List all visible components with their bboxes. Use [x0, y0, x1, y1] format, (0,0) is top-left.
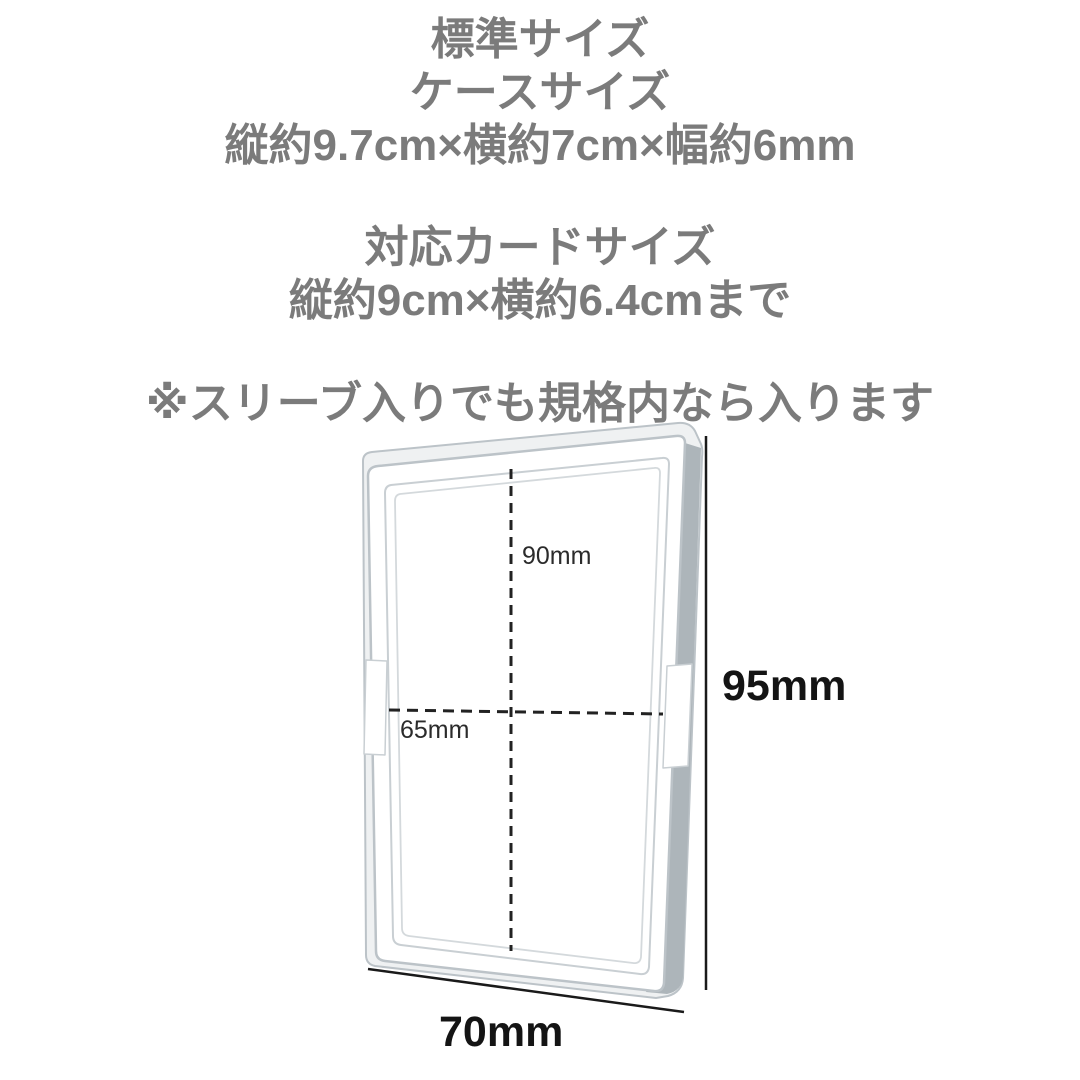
left-slot-notch	[364, 660, 387, 755]
case-front-face	[368, 436, 685, 991]
label-card-height: 90mm	[522, 542, 591, 571]
label-case-width: 70mm	[439, 1008, 563, 1057]
product-spec-image: 標準サイズ ケースサイズ 縦約9.7cm×横約7cm×幅約6mm 対応カードサイ…	[0, 0, 1080, 1080]
label-card-width: 65mm	[400, 716, 469, 745]
label-case-height: 95mm	[722, 662, 846, 711]
case-diagram	[0, 0, 1080, 1080]
right-slot-notch	[663, 664, 692, 768]
